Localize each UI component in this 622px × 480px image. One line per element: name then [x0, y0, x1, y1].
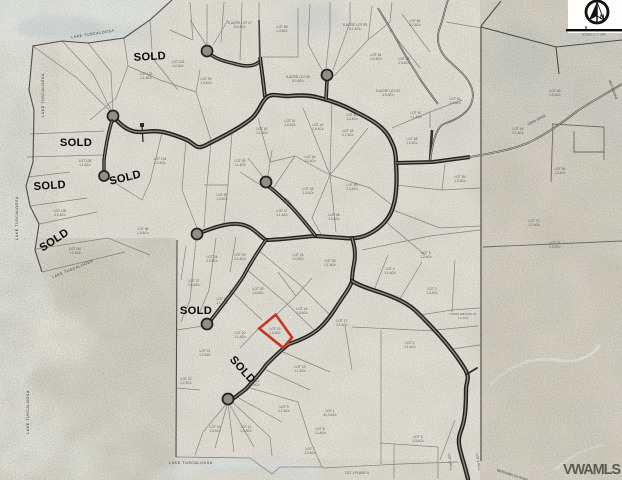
- svg-text:1.1 AC±: 1.1 AC±: [512, 131, 524, 135]
- svg-text:1.1 AC±: 1.1 AC±: [410, 115, 422, 119]
- svg-text:1.0 AC±: 1.0 AC±: [200, 81, 212, 85]
- svg-text:1.4 AC±: 1.4 AC±: [276, 29, 288, 33]
- svg-text:1.2 AC±: 1.2 AC±: [420, 255, 432, 259]
- svg-text:1.1 AC±: 1.1 AC±: [140, 76, 152, 80]
- svg-text:1.0 AC±: 1.0 AC±: [216, 197, 228, 201]
- svg-text:41.0 AC±: 41.0 AC±: [323, 413, 337, 417]
- svg-text:1.1 AC±: 1.1 AC±: [336, 323, 348, 327]
- svg-text:1.2 AC±: 1.2 AC±: [292, 257, 304, 261]
- svg-text:1.0 AC±: 1.0 AC±: [406, 141, 418, 145]
- svg-text:1.1 AC±: 1.1 AC±: [234, 163, 246, 167]
- svg-text:1.3 AC±: 1.3 AC±: [449, 101, 461, 105]
- svg-text:1.3 AC±: 1.3 AC±: [346, 187, 358, 191]
- svg-text:LAKE TUSCALOOSA: LAKE TUSCALOOSA: [26, 390, 30, 434]
- svg-text:1.1 AC±: 1.1 AC±: [278, 409, 290, 413]
- svg-text:1.0 AC±: 1.0 AC±: [240, 429, 252, 433]
- svg-text:1.1 AC±: 1.1 AC±: [324, 263, 336, 267]
- svg-text:1.0 AC±: 1.0 AC±: [549, 93, 561, 97]
- svg-text:SCALE 1" = 300': SCALE 1" = 300': [582, 33, 606, 37]
- svg-text:1.1 AC±: 1.1 AC±: [276, 213, 288, 217]
- svg-text:1.2 AC±: 1.2 AC±: [346, 117, 358, 121]
- svg-text:1.2 AC±: 1.2 AC±: [154, 161, 166, 165]
- svg-text:1.2 AC±: 1.2 AC±: [554, 171, 566, 175]
- svg-text:LAKE TUSCALOOSA: LAKE TUSCALOOSA: [169, 461, 213, 465]
- svg-text:1.1 AC±: 1.1 AC±: [234, 335, 246, 339]
- svg-text:1.1 AC±: 1.1 AC±: [79, 163, 91, 167]
- svg-text:1.1 AC±: 1.1 AC±: [234, 257, 246, 261]
- svg-text:1.1 AC±: 1.1 AC±: [69, 251, 81, 255]
- svg-text:1.0 AC±: 1.0 AC±: [206, 259, 218, 263]
- svg-text:1.2 AC±: 1.2 AC±: [180, 381, 192, 385]
- svg-text:1.0 AC±: 1.0 AC±: [328, 217, 340, 221]
- svg-text:1.0 AC±: 1.0 AC±: [302, 191, 314, 195]
- svg-text:1.1 AC±: 1.1 AC±: [458, 316, 469, 320]
- svg-text:SOLD: SOLD: [60, 137, 92, 149]
- svg-text:N: N: [600, 15, 604, 21]
- svg-text:LAKE TUSCALOOSA: LAKE TUSCALOOSA: [15, 196, 19, 240]
- svg-text:SOLD: SOLD: [33, 179, 66, 193]
- svg-text:1.2 AC±: 1.2 AC±: [454, 179, 466, 183]
- svg-text:1.2 AC±: 1.2 AC±: [342, 133, 354, 137]
- svg-text:LOT 1 PHASE 6: LOT 1 PHASE 6: [345, 471, 369, 475]
- svg-text:SOLD: SOLD: [133, 50, 166, 64]
- svg-text:5.0 AC±: 5.0 AC±: [234, 25, 246, 29]
- svg-text:1.0 AC±: 1.0 AC±: [54, 213, 66, 217]
- svg-text:1.1 AC±: 1.1 AC±: [216, 301, 228, 305]
- svg-text:1.0 AC±: 1.0 AC±: [426, 291, 438, 295]
- svg-text:5.0 AC±: 5.0 AC±: [292, 79, 304, 83]
- svg-text:1.2 AC±: 1.2 AC±: [172, 64, 184, 68]
- svg-text:1.1 AC±: 1.1 AC±: [404, 345, 416, 349]
- svg-text:1.0 AC±: 1.0 AC±: [269, 331, 281, 335]
- svg-text:1.1 AC±: 1.1 AC±: [256, 131, 268, 135]
- svg-text:1.0 AC±: 1.0 AC±: [412, 439, 424, 443]
- svg-text:1.0 AC±: 1.0 AC±: [312, 127, 324, 131]
- svg-text:1.0 AC±: 1.0 AC±: [137, 231, 149, 235]
- svg-text:1.2 AC±: 1.2 AC±: [314, 431, 326, 435]
- svg-text:1.0 AC±: 1.0 AC±: [209, 429, 221, 433]
- svg-text:1.2 AC±: 1.2 AC±: [409, 23, 421, 27]
- svg-text:1.1 AC±: 1.1 AC±: [384, 271, 396, 275]
- svg-text:1.0 AC±: 1.0 AC±: [252, 291, 264, 295]
- svg-text:SOLD: SOLD: [180, 305, 212, 317]
- svg-text:5.1 AC±: 5.1 AC±: [349, 27, 361, 31]
- svg-text:VWAMLS: VWAMLS: [563, 462, 621, 478]
- svg-text:1.1 AC±: 1.1 AC±: [294, 369, 306, 373]
- svg-text:1.0 AC±: 1.0 AC±: [398, 61, 410, 65]
- svg-text:1.0 AC±: 1.0 AC±: [304, 451, 316, 455]
- svg-text:1.0 AC±: 1.0 AC±: [188, 283, 200, 287]
- svg-text:1.0 AC±: 1.0 AC±: [284, 123, 296, 127]
- svg-text:LAKE TUSCALOOSA: LAKE TUSCALOOSA: [41, 73, 45, 117]
- svg-text:1.1 AC±: 1.1 AC±: [304, 159, 316, 163]
- svg-text:1.0 AC±: 1.0 AC±: [296, 311, 308, 315]
- svg-text:1.1 AC±: 1.1 AC±: [528, 223, 540, 227]
- svg-text:1.0 AC±: 1.0 AC±: [199, 353, 211, 357]
- svg-text:4.9 AC±: 4.9 AC±: [382, 93, 394, 97]
- svg-text:1.0 AC±: 1.0 AC±: [549, 245, 561, 249]
- svg-text:1.0 AC±: 1.0 AC±: [370, 57, 382, 61]
